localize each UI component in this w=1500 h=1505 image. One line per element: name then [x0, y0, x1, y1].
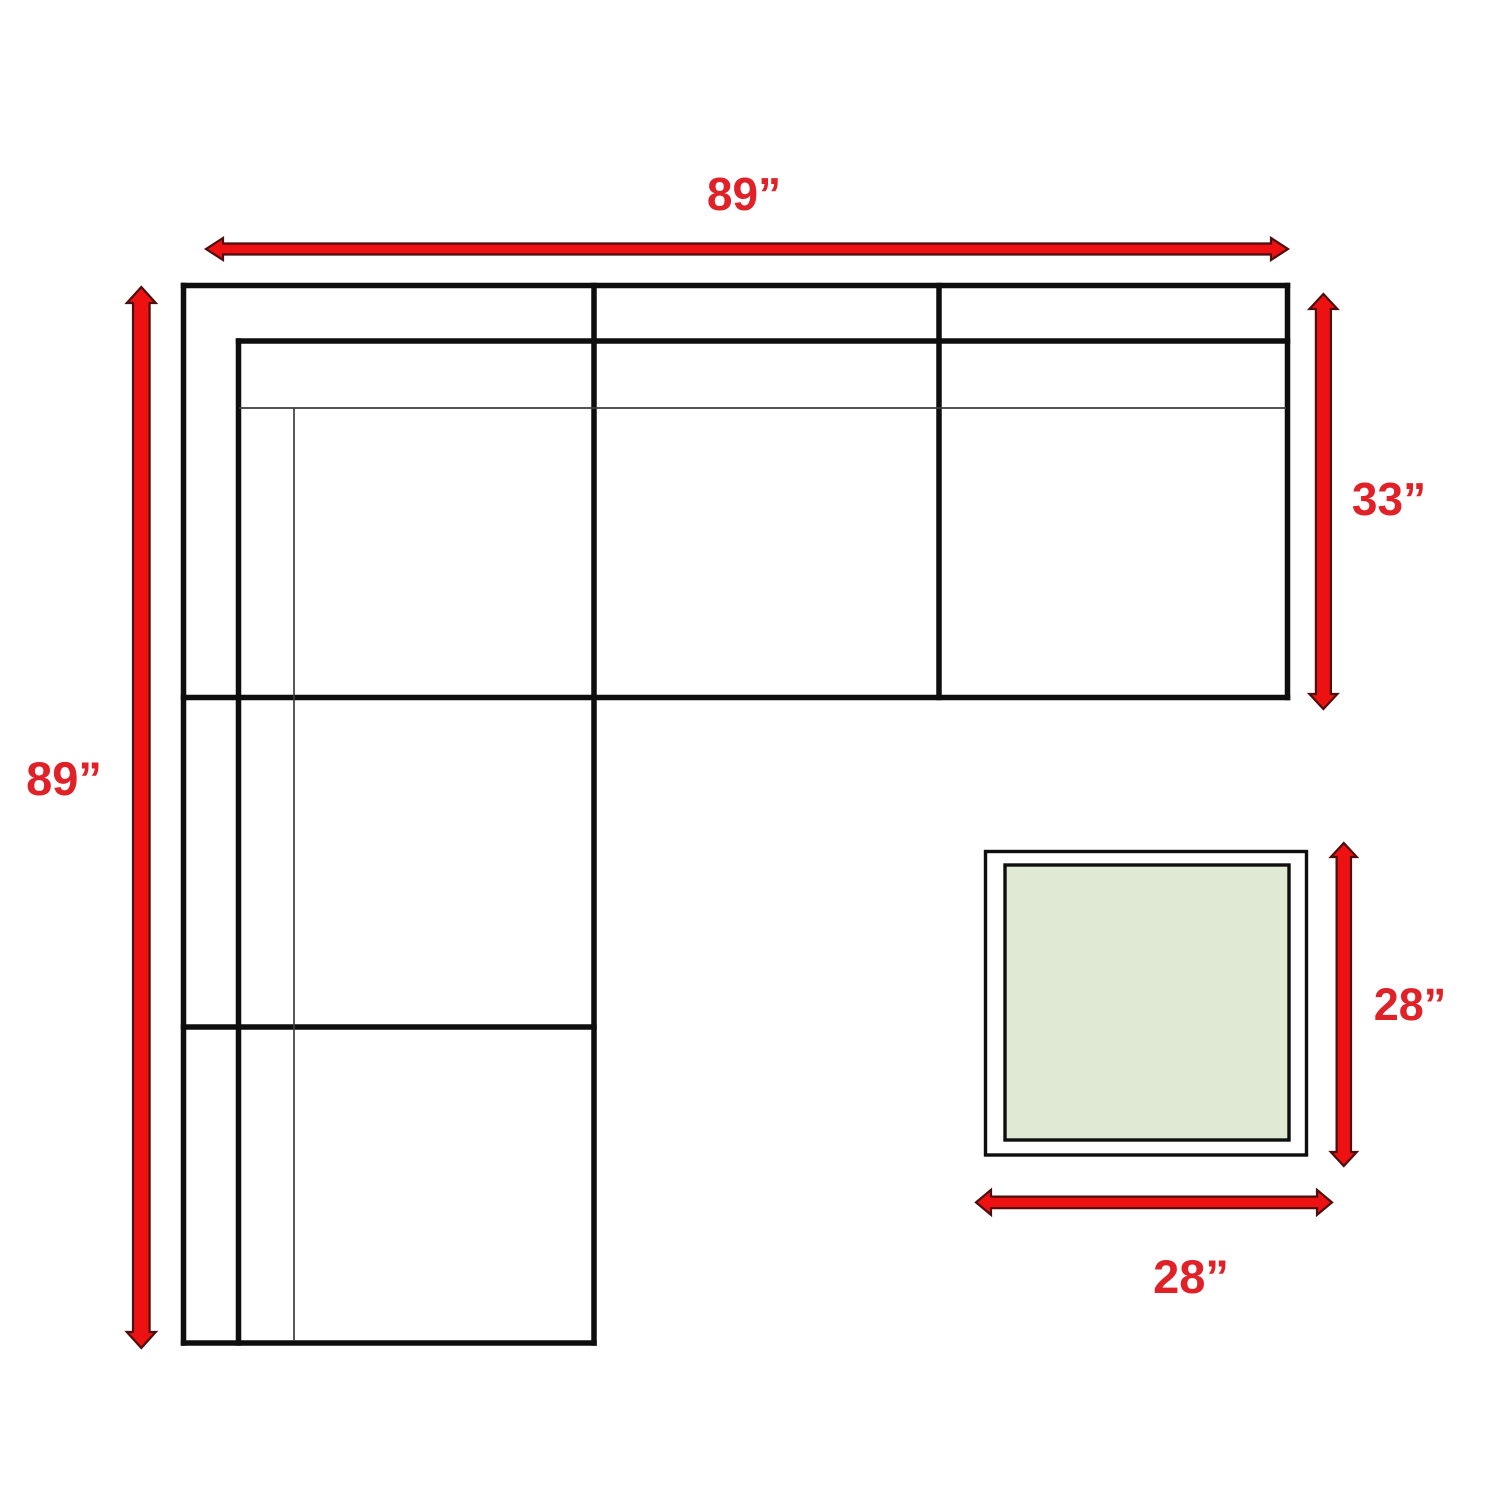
- svg-text:33”: 33”: [1352, 473, 1426, 525]
- svg-text:89”: 89”: [707, 168, 781, 220]
- svg-text:28”: 28”: [1374, 979, 1447, 1030]
- svg-text:28”: 28”: [1153, 1250, 1229, 1303]
- svg-text:89”: 89”: [26, 752, 102, 805]
